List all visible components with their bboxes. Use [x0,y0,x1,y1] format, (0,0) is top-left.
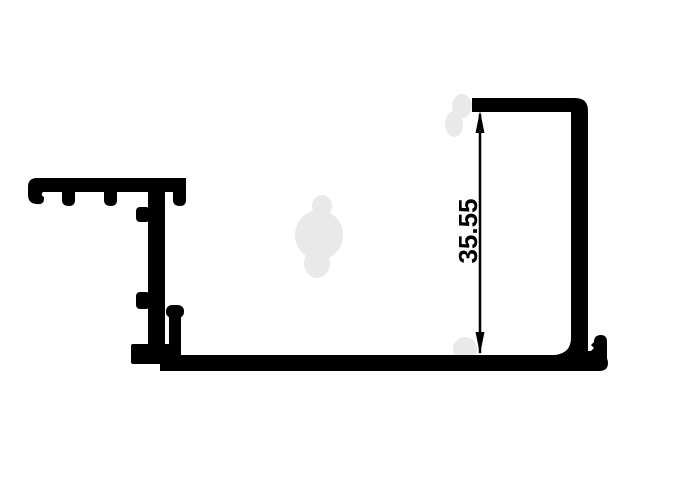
foot-finger-body [169,308,181,358]
arm-tooth-1 [62,186,75,206]
watermark-blob-bottom-lobe [304,248,330,278]
arm-right-finger [173,186,186,206]
stem-web [148,178,165,360]
profile-cross-section-drawing: 35.55 [0,0,700,491]
arm-tooth-2 [104,186,117,206]
dimension-label: 35.55 [453,198,483,263]
profile-left-section [28,178,186,364]
watermark-smudge-upper-tail [445,111,463,137]
right-wall-and-flange [472,98,588,362]
base-right-hook [591,335,607,368]
drawing-canvas: 35.55 [0,0,700,491]
base-plate [160,355,608,371]
profile-right-section [472,98,607,368]
watermark-smudges [295,94,477,361]
dimension-arrow-up [476,111,485,133]
stem-bump-lower [136,292,150,309]
wall-base-fillet [555,338,571,355]
dimension-annotation: 35.55 [453,111,485,354]
arm-left-hook [28,178,54,204]
stem-bump-upper [136,207,150,222]
